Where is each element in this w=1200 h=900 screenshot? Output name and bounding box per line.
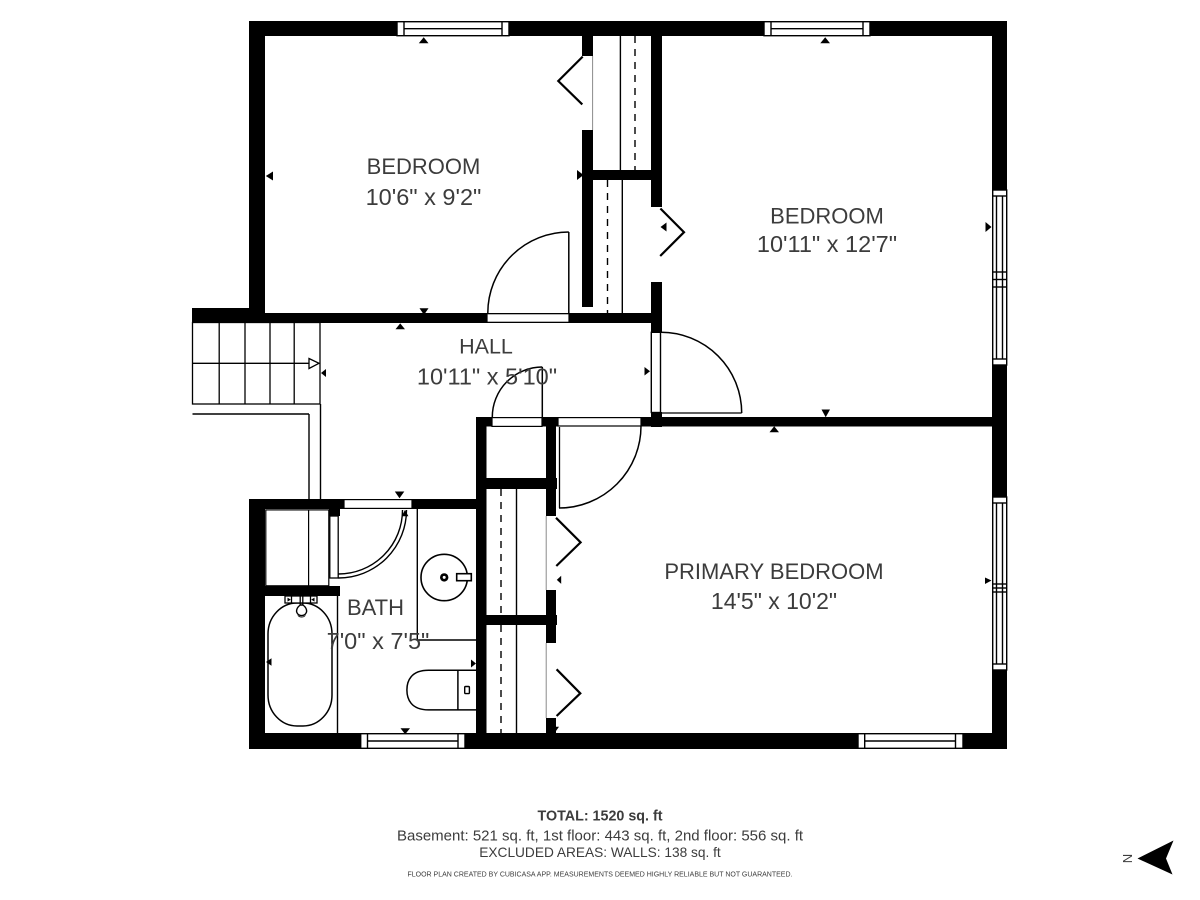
- svg-text:Basement: 521 sq. ft, 1st floo: Basement: 521 sq. ft, 1st floor: 443 sq.…: [397, 827, 804, 844]
- svg-text:EXCLUDED AREAS: WALLS: 138 sq.: EXCLUDED AREAS: WALLS: 138 sq. ft: [479, 845, 721, 860]
- svg-text:7'0" x 7'5": 7'0" x 7'5": [327, 628, 430, 654]
- svg-text:BEDROOM: BEDROOM: [367, 154, 481, 179]
- svg-text:14'5" x 10'2": 14'5" x 10'2": [711, 588, 837, 614]
- svg-text:N: N: [1120, 854, 1135, 863]
- svg-text:10'6" x 9'2": 10'6" x 9'2": [366, 184, 482, 210]
- svg-text:BATH: BATH: [347, 595, 404, 620]
- svg-text:10'11" x 5'10": 10'11" x 5'10": [417, 364, 557, 390]
- svg-text:HALL: HALL: [459, 335, 513, 359]
- svg-text:10'11" x 12'7": 10'11" x 12'7": [757, 231, 897, 257]
- svg-text:FLOOR PLAN CREATED BY CUBICASA: FLOOR PLAN CREATED BY CUBICASA APP. MEAS…: [408, 872, 793, 879]
- svg-text:TOTAL: 1520 sq. ft: TOTAL: 1520 sq. ft: [538, 809, 663, 825]
- svg-text:BEDROOM: BEDROOM: [770, 204, 884, 229]
- svg-text:PRIMARY BEDROOM: PRIMARY BEDROOM: [664, 559, 883, 584]
